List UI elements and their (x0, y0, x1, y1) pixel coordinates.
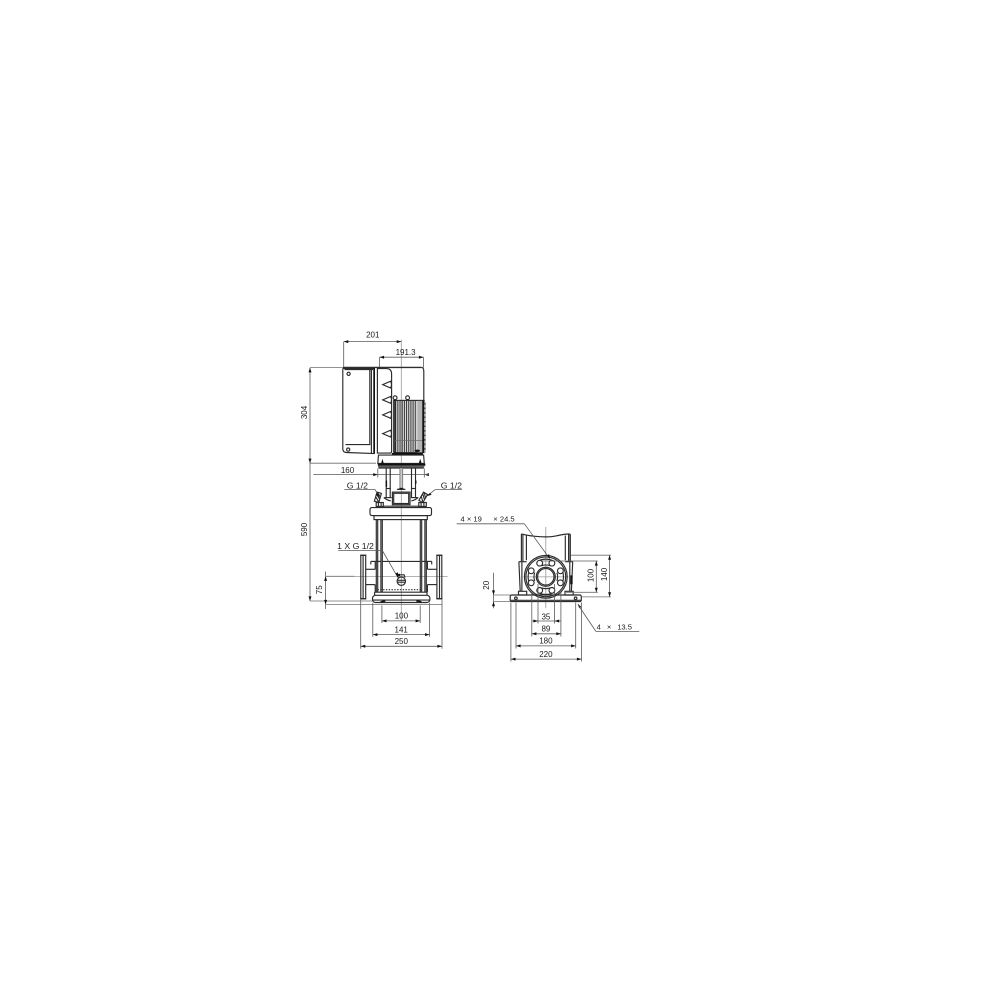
svg-text:590: 590 (300, 522, 309, 536)
svg-text:1 X G 1/2: 1 X G 1/2 (337, 541, 374, 551)
svg-text:160: 160 (341, 466, 355, 475)
svg-text:4: 4 (597, 623, 601, 632)
svg-text:250: 250 (395, 637, 409, 646)
svg-text:20: 20 (482, 580, 491, 589)
svg-text:35: 35 (541, 612, 550, 621)
svg-text:180: 180 (539, 637, 553, 646)
svg-text:140: 140 (600, 567, 609, 581)
svg-text:13.5: 13.5 (617, 623, 632, 632)
svg-text:×: × (607, 623, 611, 632)
svg-text:89: 89 (541, 625, 550, 634)
svg-text:191.3: 191.3 (396, 348, 417, 357)
svg-text:201: 201 (366, 331, 380, 340)
svg-text:100: 100 (395, 612, 409, 621)
svg-text:100: 100 (587, 568, 596, 582)
svg-text:220: 220 (539, 650, 553, 659)
svg-text:304: 304 (300, 405, 309, 419)
svg-text:141: 141 (395, 625, 409, 634)
svg-text:4 × 19: 4 × 19 (461, 514, 482, 523)
svg-text:G 1/2: G 1/2 (347, 480, 368, 490)
svg-text:× 24.5: × 24.5 (493, 514, 514, 523)
svg-text:G 1/2: G 1/2 (441, 480, 462, 490)
svg-text:75: 75 (315, 585, 324, 594)
